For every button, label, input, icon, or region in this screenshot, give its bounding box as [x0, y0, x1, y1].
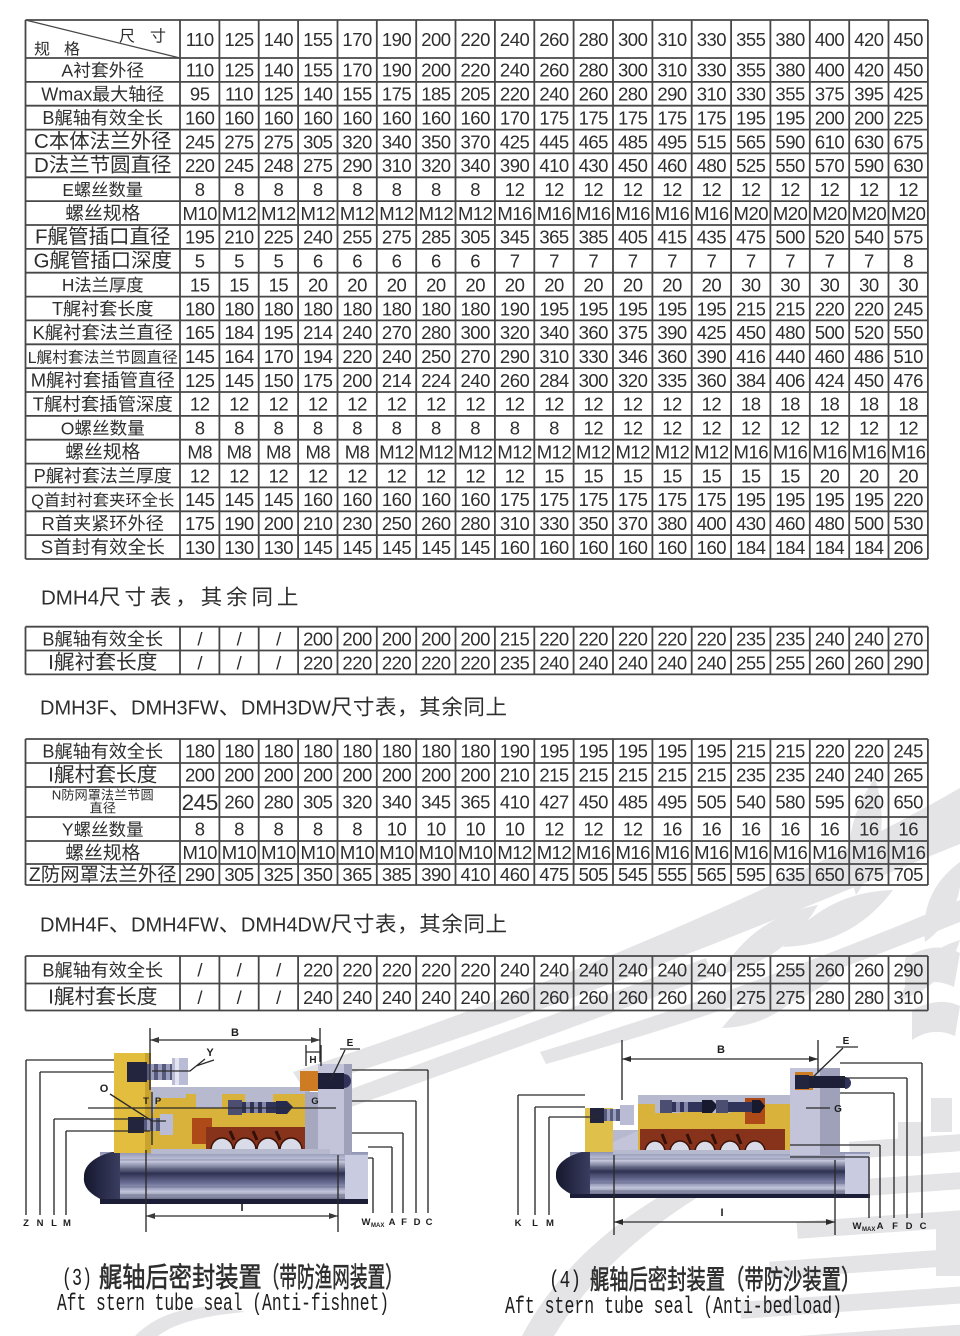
svg-text:I: I [720, 1207, 723, 1219]
svg-text:M16: M16 [852, 441, 887, 462]
svg-text:195: 195 [579, 298, 609, 319]
svg-text:M16: M16 [576, 203, 611, 224]
svg-text:220: 220 [461, 652, 491, 673]
svg-text:220: 220 [342, 652, 372, 673]
svg-text:305: 305 [224, 864, 254, 885]
svg-text:C: C [34, 130, 49, 153]
svg-text:(4): (4) [549, 1268, 581, 1295]
svg-text:8: 8 [313, 179, 323, 200]
svg-text:350: 350 [421, 131, 451, 152]
svg-text:350: 350 [579, 513, 609, 534]
svg-text:175: 175 [579, 107, 609, 128]
svg-text:M16: M16 [852, 842, 887, 863]
svg-text:20: 20 [898, 465, 918, 486]
svg-text:385: 385 [579, 227, 609, 248]
svg-text:515: 515 [697, 131, 727, 152]
svg-text:184: 184 [736, 537, 766, 558]
svg-text:8: 8 [274, 819, 284, 840]
svg-text:320: 320 [618, 370, 648, 391]
svg-text:430: 430 [579, 155, 609, 176]
svg-text:175: 175 [618, 489, 648, 510]
svg-text:380: 380 [775, 60, 805, 81]
svg-text:424: 424 [815, 370, 845, 391]
svg-text:20: 20 [426, 274, 446, 295]
svg-text:330: 330 [539, 513, 569, 534]
svg-text:240: 240 [500, 29, 530, 50]
svg-text:F: F [401, 1217, 407, 1228]
svg-text:180: 180 [382, 741, 412, 762]
svg-text:8: 8 [195, 179, 205, 200]
svg-text:/: / [276, 629, 282, 650]
svg-text:330: 330 [697, 60, 727, 81]
svg-text:480: 480 [775, 322, 805, 343]
svg-text:145: 145 [264, 489, 294, 510]
svg-text:175: 175 [539, 107, 569, 128]
svg-text:175: 175 [185, 513, 215, 534]
svg-text:220: 220 [894, 489, 924, 510]
svg-text:240: 240 [342, 322, 372, 343]
svg-text:495: 495 [657, 792, 687, 813]
svg-text:Wmax: Wmax [41, 84, 92, 104]
svg-text:160: 160 [303, 489, 333, 510]
svg-text:195: 195 [775, 107, 805, 128]
svg-text:L: L [51, 1218, 57, 1229]
svg-text:200: 200 [382, 629, 412, 650]
svg-text:130: 130 [185, 537, 215, 558]
svg-text:16: 16 [702, 819, 722, 840]
svg-text:10: 10 [426, 819, 446, 840]
svg-text:200: 200 [421, 629, 451, 650]
svg-text:12: 12 [584, 179, 604, 200]
svg-text:F: F [892, 1221, 898, 1232]
svg-text:335: 335 [657, 370, 687, 391]
svg-text:S: S [41, 537, 53, 558]
svg-text:DMH3DW: DMH3DW [241, 698, 331, 720]
svg-text:240: 240 [579, 652, 609, 673]
svg-text:E: E [347, 1038, 354, 1049]
svg-text:M20: M20 [734, 203, 769, 224]
svg-text:M12: M12 [458, 441, 493, 462]
svg-text:235: 235 [736, 629, 766, 650]
svg-text:110: 110 [225, 84, 253, 105]
svg-text:214: 214 [303, 322, 333, 343]
svg-text:M10: M10 [182, 842, 217, 863]
svg-text:170: 170 [500, 107, 530, 128]
svg-text:M20: M20 [773, 203, 808, 224]
svg-text:300: 300 [579, 370, 609, 391]
svg-text:365: 365 [461, 792, 491, 813]
svg-text:290: 290 [500, 346, 530, 367]
svg-text:18: 18 [898, 394, 918, 415]
svg-text:195: 195 [736, 107, 766, 128]
svg-text:260: 260 [539, 987, 569, 1008]
svg-text:12: 12 [584, 418, 604, 439]
svg-text:180: 180 [342, 298, 372, 319]
svg-text:145: 145 [185, 489, 215, 510]
svg-text:M20: M20 [852, 203, 887, 224]
svg-text:195: 195 [657, 298, 687, 319]
svg-text:M16: M16 [812, 842, 847, 863]
svg-text:570: 570 [815, 155, 845, 176]
svg-text:16: 16 [741, 819, 761, 840]
svg-text:355: 355 [775, 84, 805, 105]
svg-text:12: 12 [347, 394, 367, 415]
svg-text:12: 12 [505, 394, 525, 415]
svg-text:200: 200 [421, 765, 451, 786]
svg-text:260: 260 [815, 652, 845, 673]
svg-text:520: 520 [815, 227, 845, 248]
svg-text:C: C [920, 1221, 927, 1232]
svg-text:355: 355 [736, 29, 766, 50]
svg-text:275: 275 [224, 131, 254, 152]
svg-text:12: 12 [426, 465, 446, 486]
svg-text:M16: M16 [615, 842, 650, 863]
svg-text:220: 220 [303, 652, 333, 673]
svg-text:575: 575 [894, 227, 924, 248]
svg-text:360: 360 [579, 322, 609, 343]
svg-text:510: 510 [894, 346, 924, 367]
svg-text:240: 240 [421, 987, 451, 1008]
svg-text:215: 215 [736, 298, 766, 319]
svg-text:195: 195 [539, 741, 569, 762]
svg-text:550: 550 [775, 155, 805, 176]
svg-text:145: 145 [224, 489, 254, 510]
svg-text:15: 15 [544, 465, 564, 486]
svg-text:140: 140 [264, 29, 294, 50]
svg-text:215: 215 [500, 629, 530, 650]
svg-text:M10: M10 [261, 842, 296, 863]
svg-text:7: 7 [825, 251, 835, 272]
svg-text:450: 450 [736, 322, 766, 343]
svg-text:G: G [34, 250, 50, 272]
svg-text:530: 530 [894, 513, 924, 534]
svg-text:275: 275 [264, 131, 294, 152]
svg-text:M12: M12 [537, 842, 572, 863]
svg-text:/: / [197, 987, 203, 1008]
svg-text:110: 110 [186, 60, 214, 81]
svg-text:10: 10 [387, 819, 407, 840]
svg-text:190: 190 [500, 741, 530, 762]
svg-text:284: 284 [539, 370, 569, 391]
svg-text:500: 500 [854, 513, 884, 534]
svg-text:550: 550 [894, 322, 924, 343]
svg-text:M16: M16 [537, 203, 572, 224]
svg-text:15: 15 [662, 465, 682, 486]
svg-text:220: 220 [500, 84, 530, 105]
svg-text:405: 405 [618, 227, 648, 248]
svg-text:220: 220 [854, 741, 884, 762]
svg-text:12: 12 [505, 465, 525, 486]
svg-text:305: 305 [461, 227, 491, 248]
svg-text:M8: M8 [187, 441, 212, 462]
svg-text:M16: M16 [497, 203, 532, 224]
svg-text:285: 285 [421, 227, 451, 248]
svg-text:300: 300 [461, 322, 491, 343]
svg-text:160: 160 [697, 537, 727, 558]
svg-text:I: I [240, 1202, 243, 1214]
svg-text:270: 270 [382, 322, 412, 343]
svg-text:175: 175 [657, 107, 687, 128]
svg-text:210: 210 [224, 227, 254, 248]
svg-text:M12: M12 [458, 203, 493, 224]
svg-text:275: 275 [736, 987, 766, 1008]
svg-text:12: 12 [623, 394, 643, 415]
svg-text:240: 240 [461, 987, 491, 1008]
svg-text:12: 12 [544, 394, 564, 415]
svg-text:310: 310 [539, 346, 569, 367]
svg-text:20: 20 [465, 274, 485, 295]
svg-text:W: W [853, 1221, 862, 1232]
svg-text:240: 240 [303, 987, 333, 1008]
svg-text:150: 150 [264, 370, 294, 391]
svg-text:M16: M16 [773, 441, 808, 462]
svg-text:DMH3F: DMH3F [40, 698, 109, 720]
svg-text:M16: M16 [576, 842, 611, 863]
svg-text:/: / [237, 652, 243, 673]
svg-text:195: 195 [539, 298, 569, 319]
svg-text:275: 275 [775, 987, 805, 1008]
svg-text:305: 305 [303, 792, 333, 813]
svg-text:675: 675 [854, 864, 884, 885]
svg-text:180: 180 [382, 298, 412, 319]
svg-text:635: 635 [775, 864, 805, 885]
svg-text:145: 145 [382, 537, 412, 558]
svg-text:8: 8 [510, 418, 520, 439]
svg-text:175: 175 [539, 489, 569, 510]
svg-text:6: 6 [352, 251, 362, 272]
svg-text:DMH4DW: DMH4DW [241, 915, 331, 937]
svg-text:545: 545 [618, 864, 648, 885]
svg-text:M10: M10 [419, 842, 454, 863]
svg-text:170: 170 [264, 346, 294, 367]
svg-text:8: 8 [470, 418, 480, 439]
svg-text:A: A [877, 1221, 884, 1232]
svg-text:7: 7 [864, 251, 874, 272]
svg-text:275: 275 [382, 227, 412, 248]
svg-text:475: 475 [736, 227, 766, 248]
svg-text:/: / [276, 652, 282, 673]
svg-text:180: 180 [264, 298, 294, 319]
svg-text:DMH4F: DMH4F [40, 915, 109, 937]
svg-text:200: 200 [461, 629, 491, 650]
svg-text:184: 184 [224, 322, 254, 343]
svg-text:160: 160 [579, 537, 609, 558]
svg-text:195: 195 [618, 741, 648, 762]
svg-text:310: 310 [894, 987, 924, 1008]
svg-text:10: 10 [465, 819, 485, 840]
svg-text:M16: M16 [891, 842, 926, 863]
svg-text:30: 30 [859, 274, 879, 295]
svg-text:240: 240 [657, 960, 687, 981]
svg-text:/: / [237, 960, 243, 981]
svg-text:400: 400 [815, 60, 845, 81]
svg-text:110: 110 [186, 29, 214, 50]
svg-text:MAX: MAX [862, 1227, 875, 1233]
svg-text:6: 6 [431, 251, 441, 272]
svg-text:20: 20 [544, 274, 564, 295]
svg-text:M16: M16 [615, 203, 650, 224]
svg-text:M12: M12 [419, 441, 454, 462]
svg-text:320: 320 [342, 792, 372, 813]
svg-text:425: 425 [697, 322, 727, 343]
svg-text:M16: M16 [694, 842, 729, 863]
svg-text:M10: M10 [301, 842, 336, 863]
svg-text:12: 12 [347, 465, 367, 486]
svg-text:M12: M12 [537, 441, 572, 462]
svg-text:Y: Y [62, 820, 74, 840]
svg-text:565: 565 [697, 864, 727, 885]
svg-text:145: 145 [185, 346, 215, 367]
svg-text:20: 20 [859, 465, 879, 486]
svg-text:180: 180 [224, 741, 254, 762]
svg-text:260: 260 [500, 370, 530, 391]
svg-text:240: 240 [579, 960, 609, 981]
svg-text:12: 12 [741, 418, 761, 439]
svg-text:20: 20 [308, 274, 328, 295]
svg-text:20: 20 [505, 274, 525, 295]
svg-text:240: 240 [854, 765, 884, 786]
svg-text:325: 325 [264, 864, 294, 885]
svg-text:460: 460 [775, 513, 805, 534]
svg-text:G: G [834, 1104, 842, 1115]
svg-text:6: 6 [313, 251, 323, 272]
svg-text:B: B [42, 108, 54, 128]
svg-text:195: 195 [264, 322, 294, 343]
svg-text:8: 8 [352, 179, 362, 200]
svg-text:235: 235 [775, 765, 805, 786]
svg-text:475: 475 [539, 864, 569, 885]
svg-text:P: P [155, 1096, 162, 1107]
svg-text:280: 280 [264, 792, 294, 813]
svg-text:248: 248 [264, 155, 294, 176]
svg-text:12: 12 [505, 179, 525, 200]
svg-text:240: 240 [500, 60, 530, 81]
svg-text:220: 220 [461, 960, 491, 981]
svg-text:280: 280 [854, 987, 884, 1008]
svg-text:230: 230 [342, 513, 372, 534]
svg-text:260: 260 [815, 960, 845, 981]
svg-text:12: 12 [229, 394, 249, 415]
svg-text:184: 184 [815, 537, 845, 558]
svg-text:340: 340 [539, 322, 569, 343]
svg-text:180: 180 [185, 298, 215, 319]
svg-text:427: 427 [539, 792, 569, 813]
svg-text:260: 260 [697, 987, 727, 1008]
svg-text:705: 705 [894, 864, 924, 885]
svg-text:15: 15 [229, 274, 249, 295]
svg-text:8: 8 [903, 251, 913, 272]
svg-text:390: 390 [657, 322, 687, 343]
svg-text:215: 215 [775, 741, 805, 762]
svg-text:420: 420 [854, 29, 884, 50]
svg-text:384: 384 [736, 370, 766, 391]
svg-text:195: 195 [697, 741, 727, 762]
svg-text:425: 425 [500, 131, 530, 152]
svg-text:/: / [197, 629, 203, 650]
svg-text:M12: M12 [379, 441, 414, 462]
svg-text:M: M [63, 1218, 71, 1229]
svg-text:345: 345 [421, 792, 451, 813]
svg-text:K: K [33, 322, 45, 343]
svg-text:200: 200 [461, 765, 491, 786]
svg-text:650: 650 [894, 792, 924, 813]
svg-text:T: T [52, 299, 63, 319]
svg-text:12: 12 [702, 394, 722, 415]
svg-text:240: 240 [539, 84, 569, 105]
svg-text:214: 214 [382, 370, 412, 391]
svg-text:595: 595 [736, 864, 766, 885]
svg-text:M16: M16 [694, 203, 729, 224]
svg-text:375: 375 [618, 322, 648, 343]
svg-text:Y: Y [206, 1047, 214, 1059]
svg-text:M16: M16 [773, 842, 808, 863]
svg-text:M12: M12 [615, 441, 650, 462]
svg-text:M20: M20 [891, 203, 926, 224]
svg-text:B: B [42, 961, 54, 981]
svg-text:160: 160 [303, 107, 333, 128]
svg-text:D: D [34, 154, 49, 177]
svg-text:265: 265 [894, 765, 924, 786]
svg-text:345: 345 [500, 227, 530, 248]
svg-text:245: 245 [185, 131, 215, 152]
svg-text:220: 220 [697, 629, 727, 650]
svg-text:175: 175 [697, 107, 727, 128]
svg-text:200: 200 [264, 513, 294, 534]
svg-text:650: 650 [815, 864, 845, 885]
svg-text:H: H [62, 275, 74, 295]
svg-text:20: 20 [387, 274, 407, 295]
svg-text:7: 7 [510, 251, 520, 272]
svg-text:M12: M12 [497, 842, 532, 863]
svg-text:M: M [546, 1218, 554, 1229]
svg-text:240: 240 [342, 987, 372, 1008]
svg-text:160: 160 [657, 537, 687, 558]
svg-text:30: 30 [820, 274, 840, 295]
svg-text:16: 16 [662, 819, 682, 840]
svg-text:12: 12 [387, 465, 407, 486]
svg-text:8: 8 [195, 418, 205, 439]
svg-text:300: 300 [618, 60, 648, 81]
svg-text:8: 8 [274, 179, 284, 200]
svg-text:260: 260 [539, 29, 569, 50]
svg-text:365: 365 [342, 864, 372, 885]
svg-text:590: 590 [854, 155, 884, 176]
svg-text:255: 255 [775, 960, 805, 981]
svg-text:410: 410 [461, 864, 491, 885]
svg-text:O: O [100, 1083, 109, 1095]
svg-text:190: 190 [382, 60, 412, 81]
svg-text:12: 12 [190, 465, 210, 486]
svg-text:W: W [362, 1217, 371, 1228]
svg-text:5: 5 [234, 251, 244, 272]
svg-text:DMH4: DMH4 [41, 587, 99, 610]
svg-text:190: 190 [382, 29, 412, 50]
svg-text:495: 495 [657, 131, 687, 152]
svg-text:505: 505 [579, 864, 609, 885]
svg-text:200: 200 [185, 765, 215, 786]
svg-text:8: 8 [549, 418, 559, 439]
svg-text:F: F [35, 226, 48, 249]
svg-text:200: 200 [854, 107, 884, 128]
svg-text:8: 8 [274, 418, 284, 439]
svg-text:260: 260 [500, 987, 530, 1008]
svg-text:290: 290 [342, 155, 372, 176]
svg-text:I: I [48, 986, 54, 1009]
svg-text:215: 215 [697, 765, 727, 786]
svg-text:8: 8 [431, 179, 441, 200]
svg-text:355: 355 [736, 60, 766, 81]
svg-text:190: 190 [500, 298, 530, 319]
